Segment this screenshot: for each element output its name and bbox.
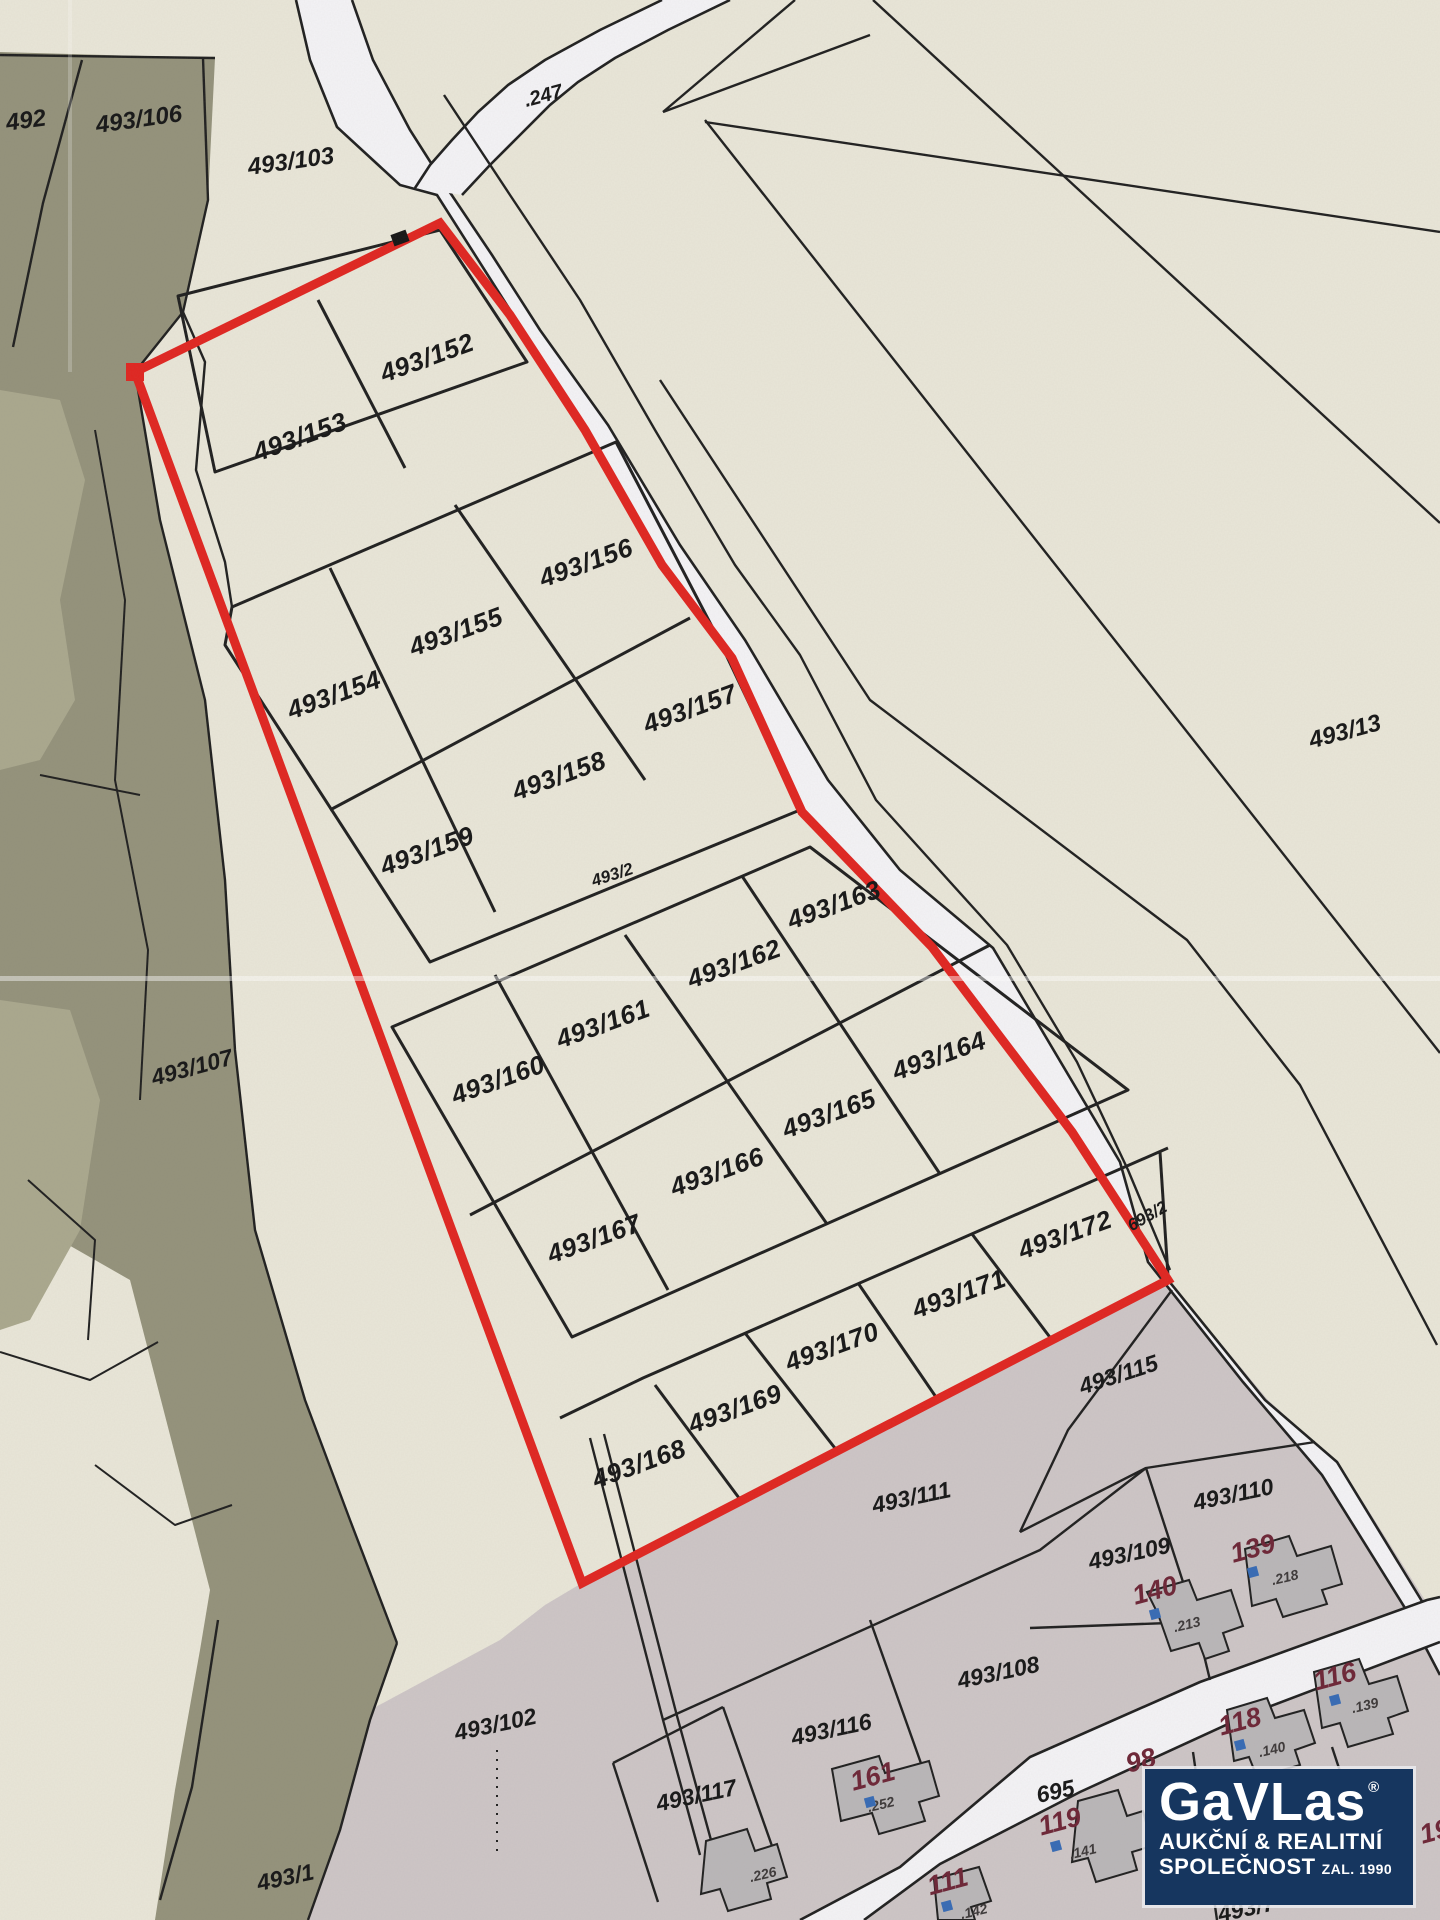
gavlas-tagline-1: AUKČNÍ & REALITNÍ: [1159, 1829, 1401, 1854]
cadastral-map-page: 492493/106493/103.247493/152493/153493/1…: [0, 0, 1440, 1920]
gavlas-tagline-2: SPOLEČNOSTZAL. 1990: [1159, 1854, 1401, 1879]
registered-trademark-icon: ®: [1368, 1779, 1380, 1796]
gavlas-logo: GaVLas® AUKČNÍ & REALITNÍ SPOLEČNOSTZAL.…: [1145, 1769, 1413, 1905]
parcel-label-492: 492: [3, 104, 48, 137]
cadastral-map: 492493/106493/103.247493/152493/153493/1…: [0, 0, 1440, 1920]
gavlas-brand: GaVLas®: [1159, 1775, 1401, 1829]
gavlas-founded-year: ZAL. 1990: [1322, 1861, 1393, 1877]
